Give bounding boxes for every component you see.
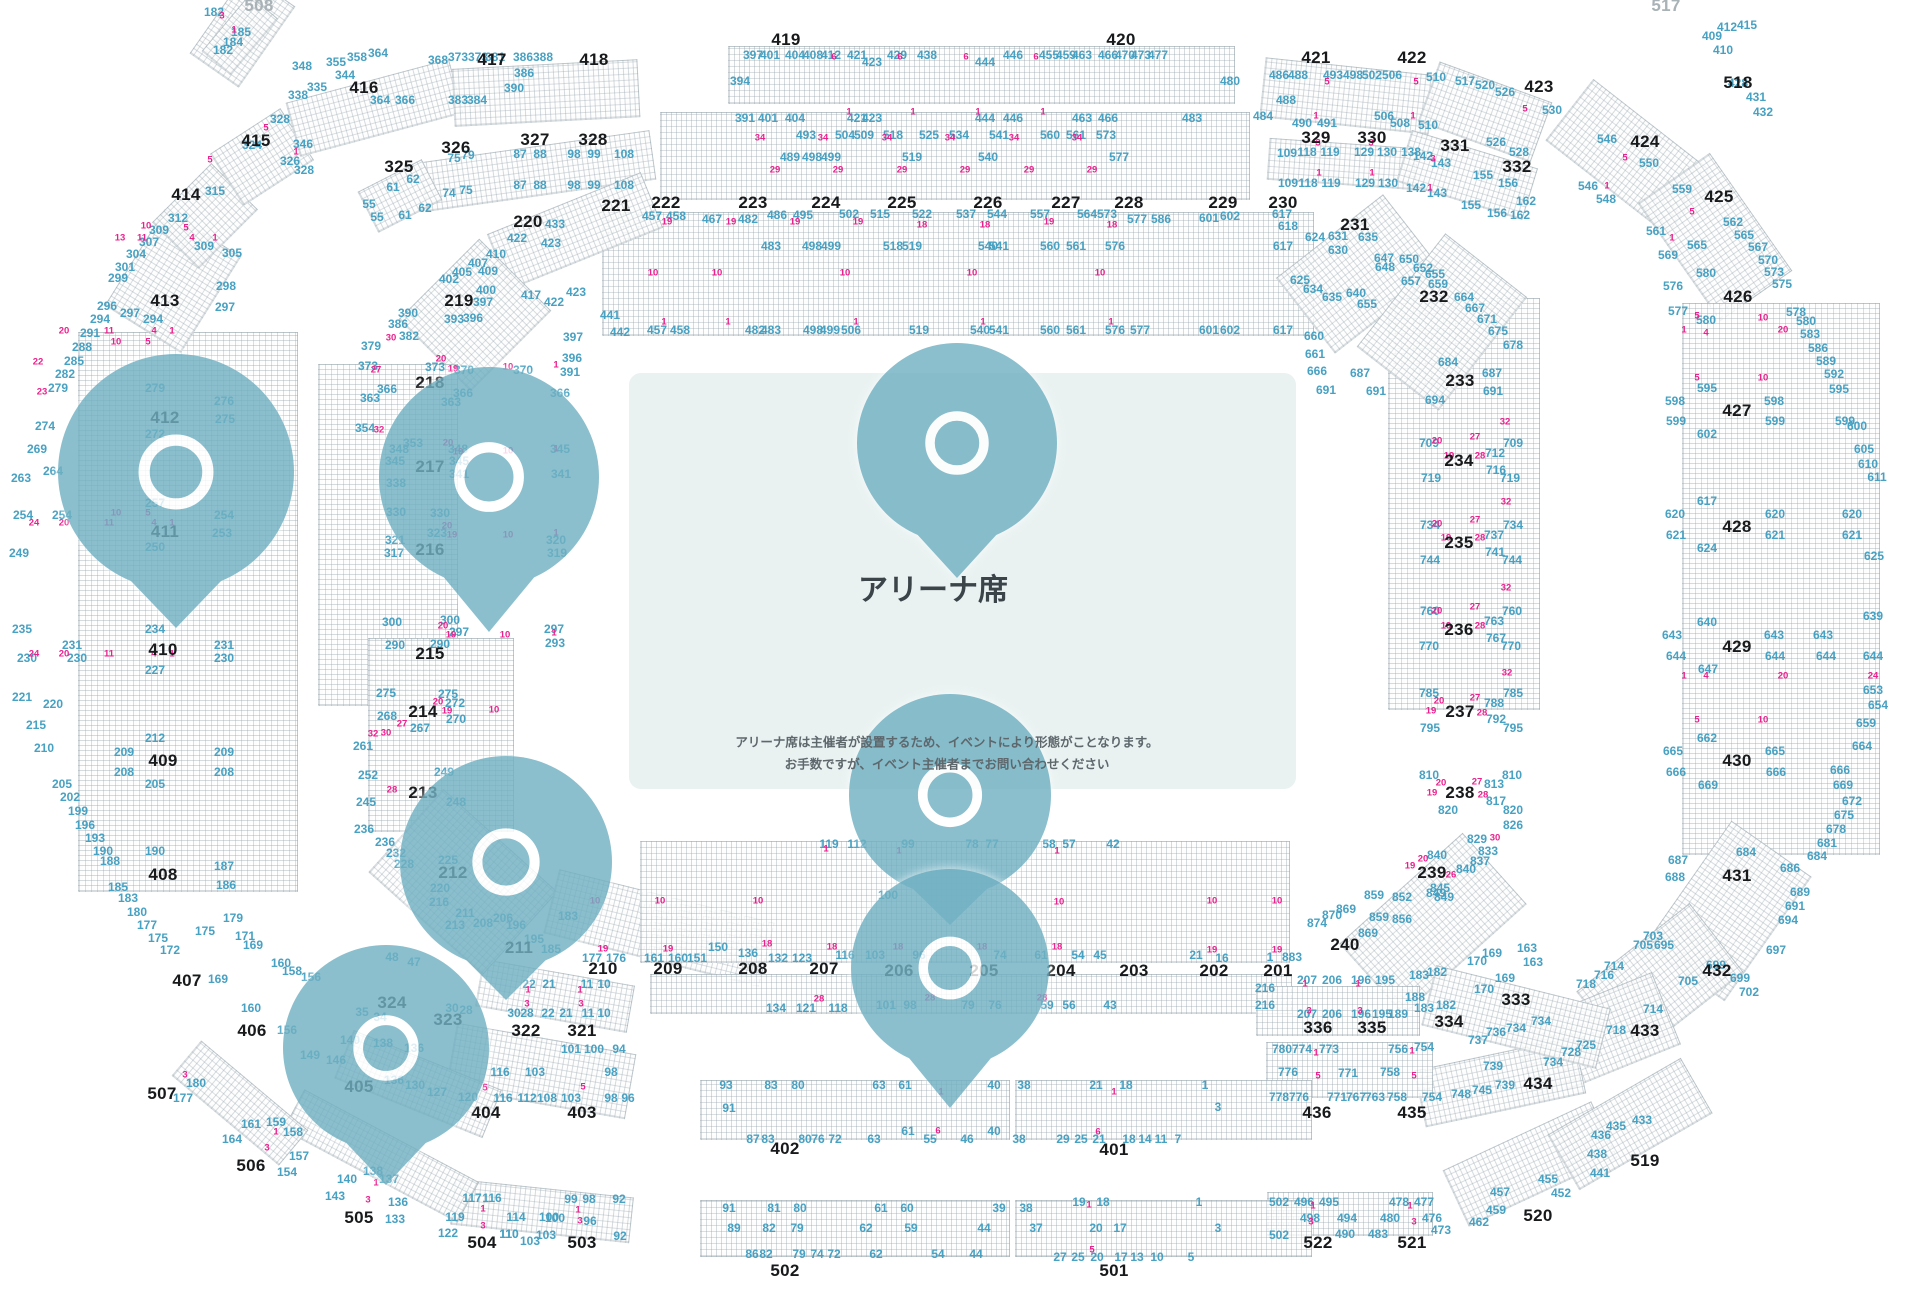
section-label-429[interactable]: 429 <box>1722 637 1751 657</box>
section-label-214[interactable]: 214 <box>408 702 437 722</box>
section-label-229[interactable]: 229 <box>1208 193 1237 213</box>
seat-number-label: 396 <box>562 351 582 365</box>
seat-number-label: 617 <box>1273 239 1293 253</box>
row-number-label: 32 <box>374 425 385 436</box>
row-number-label: 1 <box>1302 979 1307 990</box>
row-number-label: 1 <box>1669 233 1674 244</box>
section-label-413[interactable]: 413 <box>150 291 179 311</box>
section-label-502[interactable]: 502 <box>770 1261 799 1281</box>
seat-number-label: 675 <box>1834 808 1854 822</box>
seat-number-label: 519 <box>902 150 922 164</box>
section-label-231[interactable]: 231 <box>1340 215 1369 235</box>
seat-number-label: 401 <box>758 111 778 125</box>
seat-number-label: 169 <box>1482 946 1502 960</box>
seat-number-label: 338 <box>288 88 308 102</box>
row-number-label: 1 <box>525 985 530 996</box>
seat-number-label: 423 <box>862 111 882 125</box>
seat-number-label: 482 <box>738 212 758 226</box>
section-label-409[interactable]: 409 <box>148 751 177 771</box>
seat-number-label: 561 <box>1066 323 1086 337</box>
seat-number-label: 179 <box>223 911 243 925</box>
section-label-424[interactable]: 424 <box>1630 132 1659 152</box>
seat-number-label: 573 <box>1096 128 1116 142</box>
seat-number-label: 653 <box>1863 683 1883 697</box>
seat-number-label: 589 <box>1816 354 1836 368</box>
section-label-325[interactable]: 325 <box>384 157 413 177</box>
section-label-203[interactable]: 203 <box>1119 961 1148 981</box>
row-number-label: 32 <box>1502 668 1513 679</box>
seat-number-label: 328 <box>294 163 314 177</box>
seat-number-label: 132 <box>768 951 788 965</box>
seat-number-label: 397 <box>473 295 493 309</box>
section-label-210[interactable]: 210 <box>588 959 617 979</box>
seat-number-label: 79 <box>790 1221 803 1235</box>
section-label-336[interactable]: 336 <box>1303 1018 1332 1038</box>
section-label-329[interactable]: 329 <box>1301 128 1330 148</box>
seat-number-label: 675 <box>1488 324 1508 338</box>
section-label-221[interactable]: 221 <box>601 196 630 216</box>
seat-number-label: 519 <box>902 239 922 253</box>
section-label-326[interactable]: 326 <box>441 138 470 158</box>
section-label-522[interactable]: 522 <box>1303 1233 1332 1253</box>
seat-number-label: 709 <box>1503 436 1523 450</box>
map-pin[interactable] <box>851 869 1049 1108</box>
section-label-520[interactable]: 520 <box>1523 1206 1552 1226</box>
section-label-408[interactable]: 408 <box>148 865 177 885</box>
row-number-label: 29 <box>1087 165 1098 176</box>
seat-number-label: 634 <box>1303 282 1323 296</box>
seat-number-label: 432 <box>1753 105 1773 119</box>
seat-number-label: 393 <box>444 312 464 326</box>
seat-number-label: 580 <box>1696 266 1716 280</box>
row-number-label: 1 <box>1086 1200 1091 1211</box>
section-label-421[interactable]: 421 <box>1301 48 1330 68</box>
section-label-230[interactable]: 230 <box>1268 193 1297 213</box>
section-label-235[interactable]: 235 <box>1444 533 1473 553</box>
seat-number-label: 189 <box>1388 1007 1408 1021</box>
seat-number-label: 190 <box>145 844 165 858</box>
section-label-518[interactable]: 518 <box>1723 73 1752 93</box>
seat-number-label: 82 <box>762 1221 775 1235</box>
seat-number-label: 423 <box>862 55 882 69</box>
row-number-label: 32 <box>1501 497 1512 508</box>
seat-number-label: 17 <box>1113 1221 1126 1235</box>
row-number-label: 20 <box>1432 519 1443 530</box>
section-label-436[interactable]: 436 <box>1302 1103 1331 1123</box>
section-label-430[interactable]: 430 <box>1722 751 1751 771</box>
seat-number-label: 758 <box>1387 1090 1407 1104</box>
section-label-239[interactable]: 239 <box>1417 863 1446 883</box>
seat-number-label: 3 <box>1215 1221 1222 1235</box>
section-label-209[interactable]: 209 <box>653 959 682 979</box>
section-label-225[interactable]: 225 <box>887 193 916 213</box>
seat-number-label: 639 <box>1863 609 1883 623</box>
row-number-label: 6 <box>963 52 968 63</box>
section-label-227[interactable]: 227 <box>1051 193 1080 213</box>
row-number-label: 18 <box>980 220 991 231</box>
row-number-label: 1 <box>975 107 980 118</box>
row-number-label: 18 <box>917 220 928 231</box>
seat-number-label: 559 <box>1672 182 1692 196</box>
seat-number-label: 76 <box>811 1132 824 1146</box>
seat-number-label: 379 <box>361 339 381 353</box>
section-label-404[interactable]: 404 <box>471 1103 500 1123</box>
arena-note-line2: お手数ですが、イベント主催者までお問い合わせください <box>785 754 1110 773</box>
seat-number-label: 61 <box>386 180 399 194</box>
map-pin[interactable] <box>283 945 489 1185</box>
seat-number-label: 483 <box>761 239 781 253</box>
seat-number-label: 38 <box>1017 1078 1030 1092</box>
row-number-label: 34 <box>882 133 893 144</box>
section-label-222[interactable]: 222 <box>651 193 680 213</box>
seat-number-label: 388 <box>533 50 553 64</box>
seat-number-label: 433 <box>1632 1113 1652 1127</box>
section-label-415[interactable]: 415 <box>241 131 270 151</box>
section-label-215[interactable]: 215 <box>415 644 444 664</box>
section-label-322[interactable]: 322 <box>511 1021 540 1041</box>
section-label-334[interactable]: 334 <box>1434 1012 1463 1032</box>
section-label-330[interactable]: 330 <box>1357 128 1386 148</box>
section-label-335[interactable]: 335 <box>1357 1018 1386 1038</box>
section-label-224[interactable]: 224 <box>811 193 840 213</box>
section-label-406[interactable]: 406 <box>237 1021 266 1041</box>
row-number-label: 10 <box>967 268 978 279</box>
section-label-426[interactable]: 426 <box>1723 287 1752 307</box>
seat-number-label: 508 <box>1390 116 1410 130</box>
section-label-423[interactable]: 423 <box>1524 77 1553 97</box>
seat-number-label: 569 <box>1658 248 1678 262</box>
row-number-label: 11 <box>104 649 114 660</box>
row-number-label: 3 <box>1357 1006 1362 1017</box>
seat-number-label: 63 <box>872 1078 885 1092</box>
seat-number-label: 114 <box>506 1210 525 1224</box>
section-label-401[interactable]: 401 <box>1099 1140 1128 1160</box>
section-label-420[interactable]: 420 <box>1106 30 1135 50</box>
seat-number-label: 61 <box>398 208 411 222</box>
seat-number-label: 245 <box>356 795 376 809</box>
seat-number-label: 309 <box>194 239 214 253</box>
seat-number-label: 163 <box>1517 941 1537 955</box>
seat-number-label: 423 <box>566 285 586 299</box>
section-label-422[interactable]: 422 <box>1397 48 1426 68</box>
seat-number-label: 117 <box>462 1191 481 1205</box>
seat-number-label: 595 <box>1697 381 1717 395</box>
seat-number-label: 206 <box>1322 973 1342 987</box>
section-label-240[interactable]: 240 <box>1330 935 1359 955</box>
seat-number-label: 499 <box>820 323 840 337</box>
seat-number-label: 394 <box>730 74 750 88</box>
row-number-label: 32 <box>368 729 379 740</box>
section-label-431[interactable]: 431 <box>1722 866 1751 886</box>
row-number-label: 28 <box>1477 708 1488 719</box>
seat-number-label: 93 <box>719 1078 732 1092</box>
row-number-label: 10 <box>655 896 666 907</box>
section-label-331[interactable]: 331 <box>1440 136 1469 156</box>
seat-number-label: 3 <box>1215 1100 1222 1114</box>
seat-number-label: 776 <box>1278 1065 1298 1079</box>
seat-number-label: 541 <box>989 323 1009 337</box>
section-label-208[interactable]: 208 <box>738 959 767 979</box>
seat-number-label: 441 <box>1590 1166 1610 1180</box>
seat-number-label: 88 <box>533 178 546 192</box>
section-label-503[interactable]: 503 <box>567 1233 596 1253</box>
seat-number-label: 230 <box>214 651 234 665</box>
seat-number-label: 714 <box>1643 1002 1663 1016</box>
seat-number-label: 44 <box>977 1221 990 1235</box>
section-label-223[interactable]: 223 <box>738 193 767 213</box>
row-number-label: 19 <box>1207 945 1218 956</box>
section-label-238[interactable]: 238 <box>1445 783 1474 803</box>
section-label-519[interactable]: 519 <box>1630 1151 1659 1171</box>
section-label-425[interactable]: 425 <box>1704 187 1733 207</box>
section-label-419[interactable]: 419 <box>771 30 800 50</box>
seat-number-label: 473 <box>1431 1223 1451 1237</box>
section-label-501[interactable]: 501 <box>1099 1261 1128 1281</box>
seat-number-label: 810 <box>1502 768 1522 782</box>
seat-number-label: 661 <box>1305 347 1325 361</box>
section-label-402[interactable]: 402 <box>770 1139 799 1159</box>
seat-number-label: 175 <box>195 924 215 938</box>
section-label-327[interactable]: 327 <box>520 130 549 150</box>
seat-number-label: 98 <box>582 1192 595 1206</box>
section-label-504[interactable]: 504 <box>467 1233 496 1253</box>
seat-number-label: 620 <box>1842 507 1862 521</box>
seat-number-label: 99 <box>587 178 600 192</box>
section-label-332[interactable]: 332 <box>1502 157 1531 177</box>
seat-number-label: 499 <box>821 239 841 253</box>
seat-number-label: 598 <box>1665 394 1685 408</box>
seat-number-label: 21 <box>559 1006 572 1020</box>
seat-number-label: 182 <box>213 43 233 57</box>
seat-number-label: 38 <box>1012 1132 1025 1146</box>
seat-number-label: 86 <box>745 1247 758 1261</box>
seat-number-label: 640 <box>1697 615 1717 629</box>
seat-number-label: 297 <box>120 306 140 320</box>
seat-number-label: 763 <box>1484 614 1504 628</box>
section-label-414[interactable]: 414 <box>171 185 200 205</box>
seat-number-label: 305 <box>222 246 242 260</box>
seat-number-label: 517 <box>1455 74 1475 88</box>
seat-number-label: 119 <box>819 837 838 851</box>
seat-number-label: 438 <box>917 48 937 62</box>
seat-number-label: 315 <box>205 184 225 198</box>
row-number-label: 23 <box>37 387 48 398</box>
seat-number-label: 678 <box>1826 822 1846 836</box>
seat-number-label: 820 <box>1438 803 1458 817</box>
row-number-label: 1 <box>1313 111 1318 122</box>
seat-number-label: 195 <box>1375 973 1395 987</box>
section-label-508[interactable]: 508 <box>244 0 273 16</box>
row-number-label: 5 <box>482 1083 487 1094</box>
section-label-201[interactable]: 201 <box>1263 961 1292 981</box>
seat-number-label: 94 <box>612 1042 625 1056</box>
section-label-219[interactable]: 219 <box>444 291 473 311</box>
section-label-407[interactable]: 407 <box>172 971 201 991</box>
seat-number-label: 462 <box>1469 1215 1489 1229</box>
seat-number-label: 62 <box>418 201 431 215</box>
row-number-label: 6 <box>935 1126 940 1137</box>
section-label-237[interactable]: 237 <box>1445 702 1474 722</box>
section-label-321[interactable]: 321 <box>567 1021 596 1041</box>
seat-number-label: 199 <box>68 804 88 818</box>
section-label-234[interactable]: 234 <box>1444 451 1473 471</box>
row-number-label: 1 <box>661 317 666 328</box>
seat-number-label: 506 <box>1382 68 1402 82</box>
section-label-232[interactable]: 232 <box>1419 287 1448 307</box>
seat-number-label: 186 <box>216 878 236 892</box>
seat-number-label: 705 <box>1678 974 1698 988</box>
seat-number-label: 739 <box>1495 1078 1515 1092</box>
row-number-label: 10 <box>1207 896 1218 907</box>
seat-number-label: 296 <box>97 299 117 313</box>
row-number-label: 29 <box>960 165 971 176</box>
section-label-433[interactable]: 433 <box>1630 1021 1659 1041</box>
section-label-418[interactable]: 418 <box>579 50 608 70</box>
section-label-226[interactable]: 226 <box>973 193 1002 213</box>
seat-number-label: 442 <box>610 325 630 339</box>
row-number-label: 5 <box>1315 1071 1320 1082</box>
seat-number-label: 744 <box>1502 553 1522 567</box>
seat-number-label: 480 <box>1220 74 1240 88</box>
seat-number-label: 21 <box>1089 1078 1102 1092</box>
seat-number-label: 575 <box>1772 277 1792 291</box>
seat-number-label: 577 <box>1668 304 1688 318</box>
section-label-228[interactable]: 228 <box>1114 193 1143 213</box>
seat-number-label: 770 <box>1419 639 1439 653</box>
row-number-label: 3 <box>578 999 583 1010</box>
seat-number-label: 170 <box>1474 982 1494 996</box>
section-label-416[interactable]: 416 <box>349 78 378 98</box>
row-number-label: 19 <box>1427 788 1438 799</box>
section-label-428[interactable]: 428 <box>1722 517 1751 537</box>
row-number-label: 10 <box>1095 268 1106 279</box>
row-number-label: 1 <box>1040 107 1045 118</box>
seat-number-label: 599 <box>1765 414 1785 428</box>
seat-number-label: 89 <box>727 1221 740 1235</box>
section-label-333[interactable]: 333 <box>1501 990 1530 1010</box>
seat-number-label: 87 <box>746 1132 759 1146</box>
seat-number-label: 662 <box>1697 731 1717 745</box>
seat-number-label: 518 <box>883 239 903 253</box>
row-number-label: 3 <box>182 1070 187 1081</box>
seat-number-label: 621 <box>1666 528 1686 542</box>
seat-number-label: 489 <box>780 150 800 164</box>
row-number-label: 5 <box>1689 207 1694 218</box>
seat-number-label: 620 <box>1765 507 1785 521</box>
seat-number-label: 666 <box>1766 765 1786 779</box>
row-number-label: 28 <box>1475 533 1486 544</box>
seat-number-label: 279 <box>48 381 68 395</box>
row-number-label: 20 <box>1432 436 1443 447</box>
seat-number-label: 157 <box>289 1149 309 1163</box>
seat-number-label: 285 <box>64 354 84 368</box>
seat-number-label: 268 <box>377 709 397 723</box>
seat-number-label: 288 <box>72 340 92 354</box>
row-number-label: 29 <box>1024 165 1035 176</box>
seat-number-label: 687 <box>1350 366 1370 380</box>
row-number-label: 19 <box>726 217 737 228</box>
seat-number-label: 180 <box>186 1076 206 1090</box>
seat-number-label: 142 <box>1406 181 1426 195</box>
seat-number-label: 300 <box>382 615 402 629</box>
row-number-label: 10 <box>489 705 500 716</box>
seat-number-label: 183 <box>1414 1001 1434 1015</box>
seat-number-label: 290 <box>385 638 405 652</box>
section-label-202[interactable]: 202 <box>1199 961 1228 981</box>
section-label-233[interactable]: 233 <box>1445 371 1474 391</box>
section-label-236[interactable]: 236 <box>1444 620 1473 640</box>
seat-number-label: 205 <box>52 777 72 791</box>
row-number-label: 1 <box>1410 111 1415 122</box>
row-number-label: 1 <box>1369 168 1374 179</box>
seat-number-label: 193 <box>85 831 105 845</box>
section-label-517[interactable]: 517 <box>1651 0 1680 16</box>
section-label-435[interactable]: 435 <box>1397 1103 1426 1123</box>
seat-number-label: 42 <box>1106 837 1119 851</box>
seat-number-label: 592 <box>1824 367 1844 381</box>
section-label-521[interactable]: 521 <box>1397 1233 1426 1253</box>
seat-number-label: 100 <box>539 1210 559 1224</box>
seat-number-label: 548 <box>1596 192 1616 206</box>
seat-number-label: 422 <box>544 295 564 309</box>
seat-number-label: 657 <box>1401 274 1421 288</box>
section-label-328[interactable]: 328 <box>578 130 607 150</box>
seat-number-label: 655 <box>1357 297 1377 311</box>
row-number-label: 1 <box>273 1127 278 1138</box>
row-number-label: 1 <box>823 844 828 855</box>
row-number-label: 3 <box>1308 1217 1313 1228</box>
seat-number-label: 98 <box>604 1091 617 1105</box>
seat-number-label: 502 <box>1269 1228 1289 1242</box>
section-label-506[interactable]: 506 <box>236 1156 265 1176</box>
seat-number-label: 490 <box>1335 1227 1355 1241</box>
section-label-505[interactable]: 505 <box>344 1208 373 1228</box>
seat-number-label: 267 <box>410 721 430 735</box>
seat-number-label: 72 <box>827 1247 840 1261</box>
row-number-label: 1 <box>1681 671 1686 682</box>
section-label-410[interactable]: 410 <box>148 640 177 660</box>
seat-number-label: 760 <box>1502 604 1522 618</box>
row-number-label: 3 <box>219 11 224 22</box>
seat-number-label: 495 <box>1319 1195 1339 1209</box>
seat-number-label: 446 <box>1003 48 1023 62</box>
seat-number-label: 169 <box>1495 971 1515 985</box>
seat-number-label: 444 <box>975 55 995 69</box>
section-label-417[interactable]: 417 <box>477 50 506 70</box>
seat-number-label: 689 <box>1790 885 1810 899</box>
section-label-204[interactable]: 204 <box>1046 961 1075 981</box>
seat-number-label: 160 <box>241 1001 261 1015</box>
section-label-403[interactable]: 403 <box>567 1103 596 1123</box>
seat-number-label: 734 <box>1503 518 1523 532</box>
row-number-label: 10 <box>753 896 764 907</box>
section-label-434[interactable]: 434 <box>1523 1074 1552 1094</box>
row-number-label: 1 <box>1054 846 1059 857</box>
row-number-label: 18 <box>827 942 838 953</box>
seat-number-label: 20 <box>1089 1221 1102 1235</box>
section-label-220[interactable]: 220 <box>513 212 542 232</box>
seat-number-label: 598 <box>1764 394 1784 408</box>
seat-number-label: 504 <box>835 128 855 142</box>
section-label-207[interactable]: 207 <box>809 959 838 979</box>
section-label-427[interactable]: 427 <box>1722 401 1751 421</box>
seat-number-label: 577 <box>1109 150 1129 164</box>
seat-number-label: 664 <box>1852 739 1872 753</box>
section-label-432[interactable]: 432 <box>1702 961 1731 981</box>
section-label-507[interactable]: 507 <box>147 1084 176 1104</box>
seat-number-label: 151 <box>687 951 707 965</box>
seat-number-label: 586 <box>1151 212 1171 226</box>
